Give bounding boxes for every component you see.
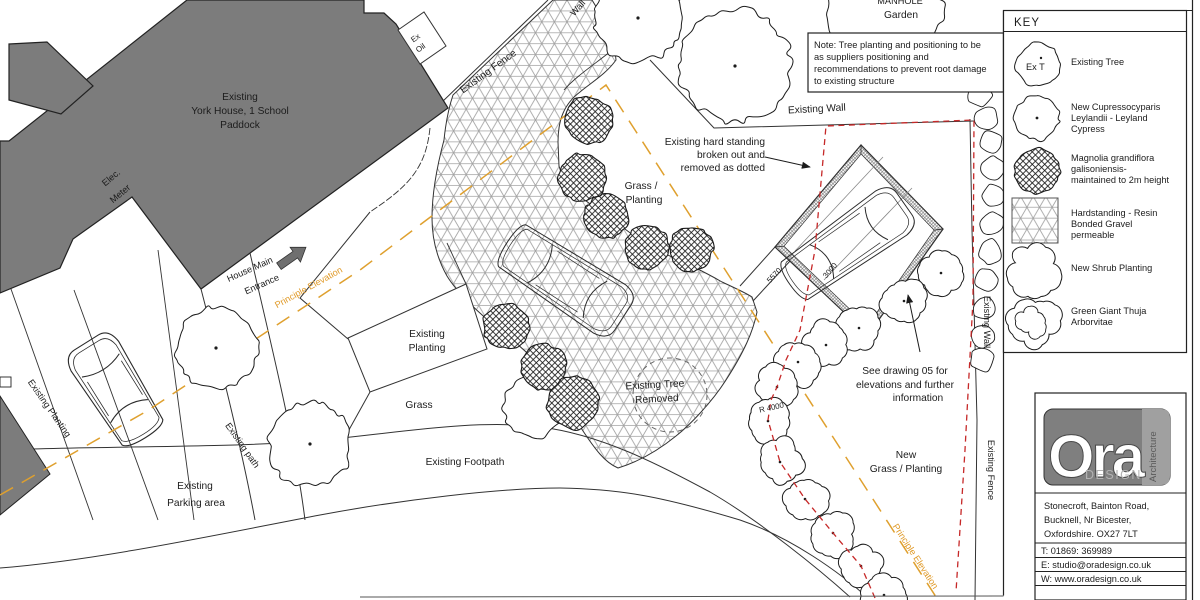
svg-text:Architecture: Architecture [1148, 431, 1159, 482]
svg-text:Existing Wall: Existing Wall [982, 296, 992, 348]
svg-text:Hardstanding - Resin: Hardstanding - Resin [1071, 208, 1157, 218]
svg-text:E: studio@oradesign.co.uk: E: studio@oradesign.co.uk [1041, 560, 1151, 570]
svg-text:KEY: KEY [1014, 17, 1040, 29]
svg-text:to existing structure: to existing structure [814, 76, 895, 86]
svg-text:Note: Tree planting and positi: Note: Tree planting and positioning to b… [814, 40, 981, 50]
svg-text:Planting: Planting [626, 195, 663, 206]
svg-text:Grass /: Grass / [625, 181, 658, 192]
svg-text:as suppliers positioning and: as suppliers positioning and [814, 52, 929, 62]
svg-text:W: www.oradesign.co.uk: W: www.oradesign.co.uk [1041, 574, 1142, 584]
svg-text:York House, 1 School: York House, 1 School [191, 106, 289, 117]
svg-text:Oxfordshire. OX27 7LT: Oxfordshire. OX27 7LT [1044, 529, 1138, 539]
svg-text:Ex T: Ex T [1026, 62, 1045, 72]
svg-text:Bucknell, Nr Bicester,: Bucknell, Nr Bicester, [1044, 515, 1131, 525]
svg-text:removed as dotted: removed as dotted [681, 163, 766, 174]
svg-text:Paddock: Paddock [220, 120, 261, 131]
svg-text:Stonecroft, Bainton Road,: Stonecroft, Bainton Road, [1044, 501, 1149, 511]
svg-text:Existing Fence: Existing Fence [986, 440, 996, 500]
svg-text:galisoniensis-: galisoniensis- [1071, 164, 1127, 174]
svg-text:See drawing 05 for: See drawing 05 for [862, 366, 948, 377]
svg-text:recommendations to prevent roo: recommendations to prevent root damage [814, 64, 987, 74]
svg-text:New: New [896, 450, 917, 461]
svg-text:information: information [893, 393, 943, 404]
svg-text:Existing: Existing [409, 329, 445, 340]
svg-text:Garden: Garden [884, 10, 918, 21]
svg-text:Leylandii - Leyland: Leylandii - Leyland [1071, 113, 1148, 123]
svg-text:Existing: Existing [222, 92, 258, 103]
svg-text:Bonded Gravel: Bonded Gravel [1071, 219, 1132, 229]
svg-text:Grass: Grass [405, 400, 432, 411]
svg-text:maintained to 2m height: maintained to 2m height [1071, 175, 1170, 185]
svg-text:MANHOLE: MANHOLE [877, 0, 922, 6]
svg-text:broken out and: broken out and [697, 150, 765, 161]
svg-text:New Shrub Planting: New Shrub Planting [1071, 263, 1152, 273]
svg-text:T: 01869: 369989: T: 01869: 369989 [1041, 546, 1112, 556]
svg-text:Removed: Removed [635, 393, 679, 406]
svg-text:Green Giant Thuja: Green Giant Thuja [1071, 306, 1147, 316]
svg-text:Existing: Existing [177, 481, 213, 492]
svg-text:Existing Footpath: Existing Footpath [426, 457, 505, 468]
svg-text:New Cupressocyparis: New Cupressocyparis [1071, 102, 1161, 112]
svg-text:permeable: permeable [1071, 230, 1114, 240]
svg-text:elevations and further: elevations and further [856, 380, 955, 391]
svg-text:Existing Tree: Existing Tree [1071, 57, 1124, 67]
svg-text:Parking area: Parking area [167, 498, 225, 509]
svg-text:Cypress: Cypress [1071, 124, 1105, 134]
svg-text:Grass / Planting: Grass / Planting [870, 464, 943, 475]
svg-text:Existing hard standing: Existing hard standing [665, 137, 766, 148]
svg-text:Planting: Planting [409, 343, 446, 354]
svg-text:Magnolia grandiflora: Magnolia grandiflora [1071, 153, 1155, 163]
svg-text:Arborvitae: Arborvitae [1071, 317, 1113, 327]
svg-text:DESIGN: DESIGN [1085, 468, 1142, 482]
